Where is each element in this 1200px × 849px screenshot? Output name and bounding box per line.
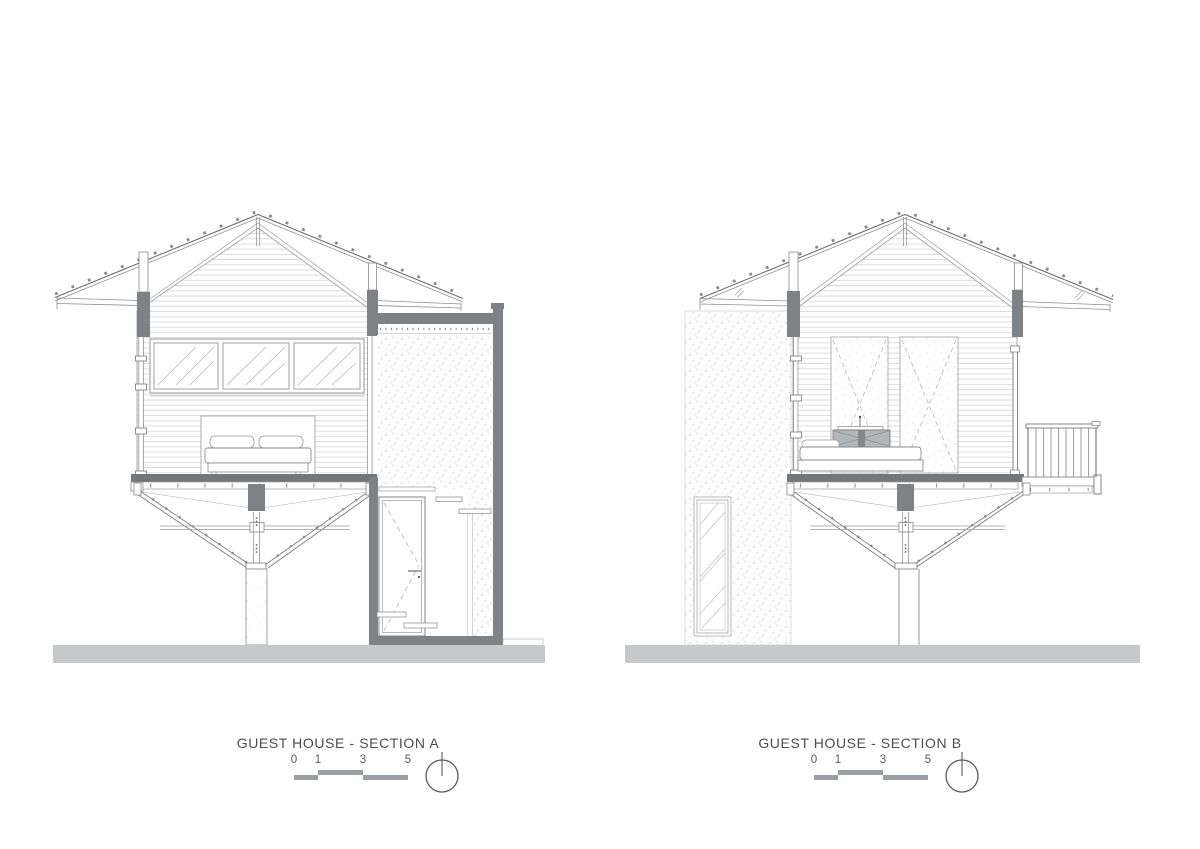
tall-window	[694, 497, 731, 636]
section-a-scale-bar: 0 1 3 5	[294, 754, 410, 781]
scale-segment	[318, 770, 363, 775]
section-b-title: GUEST HOUSE - SECTION B	[758, 735, 961, 751]
scale-label: 0	[811, 754, 817, 766]
scale-label: 0	[291, 754, 297, 766]
scale-segment	[363, 775, 408, 780]
support-column	[246, 569, 267, 645]
scale-segment	[838, 770, 883, 775]
scale-label: 3	[880, 754, 886, 766]
scale-label: 5	[405, 754, 411, 766]
scale-label: 1	[835, 754, 841, 766]
window-band	[150, 339, 364, 396]
ground-line	[625, 645, 1140, 663]
drawing-sheet: GUEST HOUSE - SECTION A 0 1 3 5 GUEST HO…	[0, 0, 1200, 849]
scale-segment	[883, 775, 928, 780]
ground-line	[53, 645, 545, 663]
north-arrow-icon	[421, 750, 463, 796]
scale-segment	[814, 775, 838, 780]
stair-tower	[369, 303, 543, 646]
scale-label: 5	[925, 754, 931, 766]
v-truss	[134, 483, 373, 569]
north-arrow-icon	[941, 750, 983, 796]
section-b-scale-bar: 0 1 3 5	[814, 754, 930, 781]
scale-segment	[294, 775, 318, 780]
scale-label: 1	[315, 754, 321, 766]
section-b-drawing	[600, 195, 1180, 675]
scale-label: 3	[360, 754, 366, 766]
section-a-caption: GUEST HOUSE - SECTION A	[233, 735, 443, 751]
section-b-caption: GUEST HOUSE - SECTION B	[755, 735, 965, 751]
section-a-drawing	[40, 195, 580, 675]
support-column	[899, 569, 919, 645]
v-truss	[787, 483, 1030, 569]
double-bed	[201, 416, 315, 477]
section-a-title: GUEST HOUSE - SECTION A	[237, 735, 440, 751]
balcony-railing	[1022, 422, 1101, 495]
